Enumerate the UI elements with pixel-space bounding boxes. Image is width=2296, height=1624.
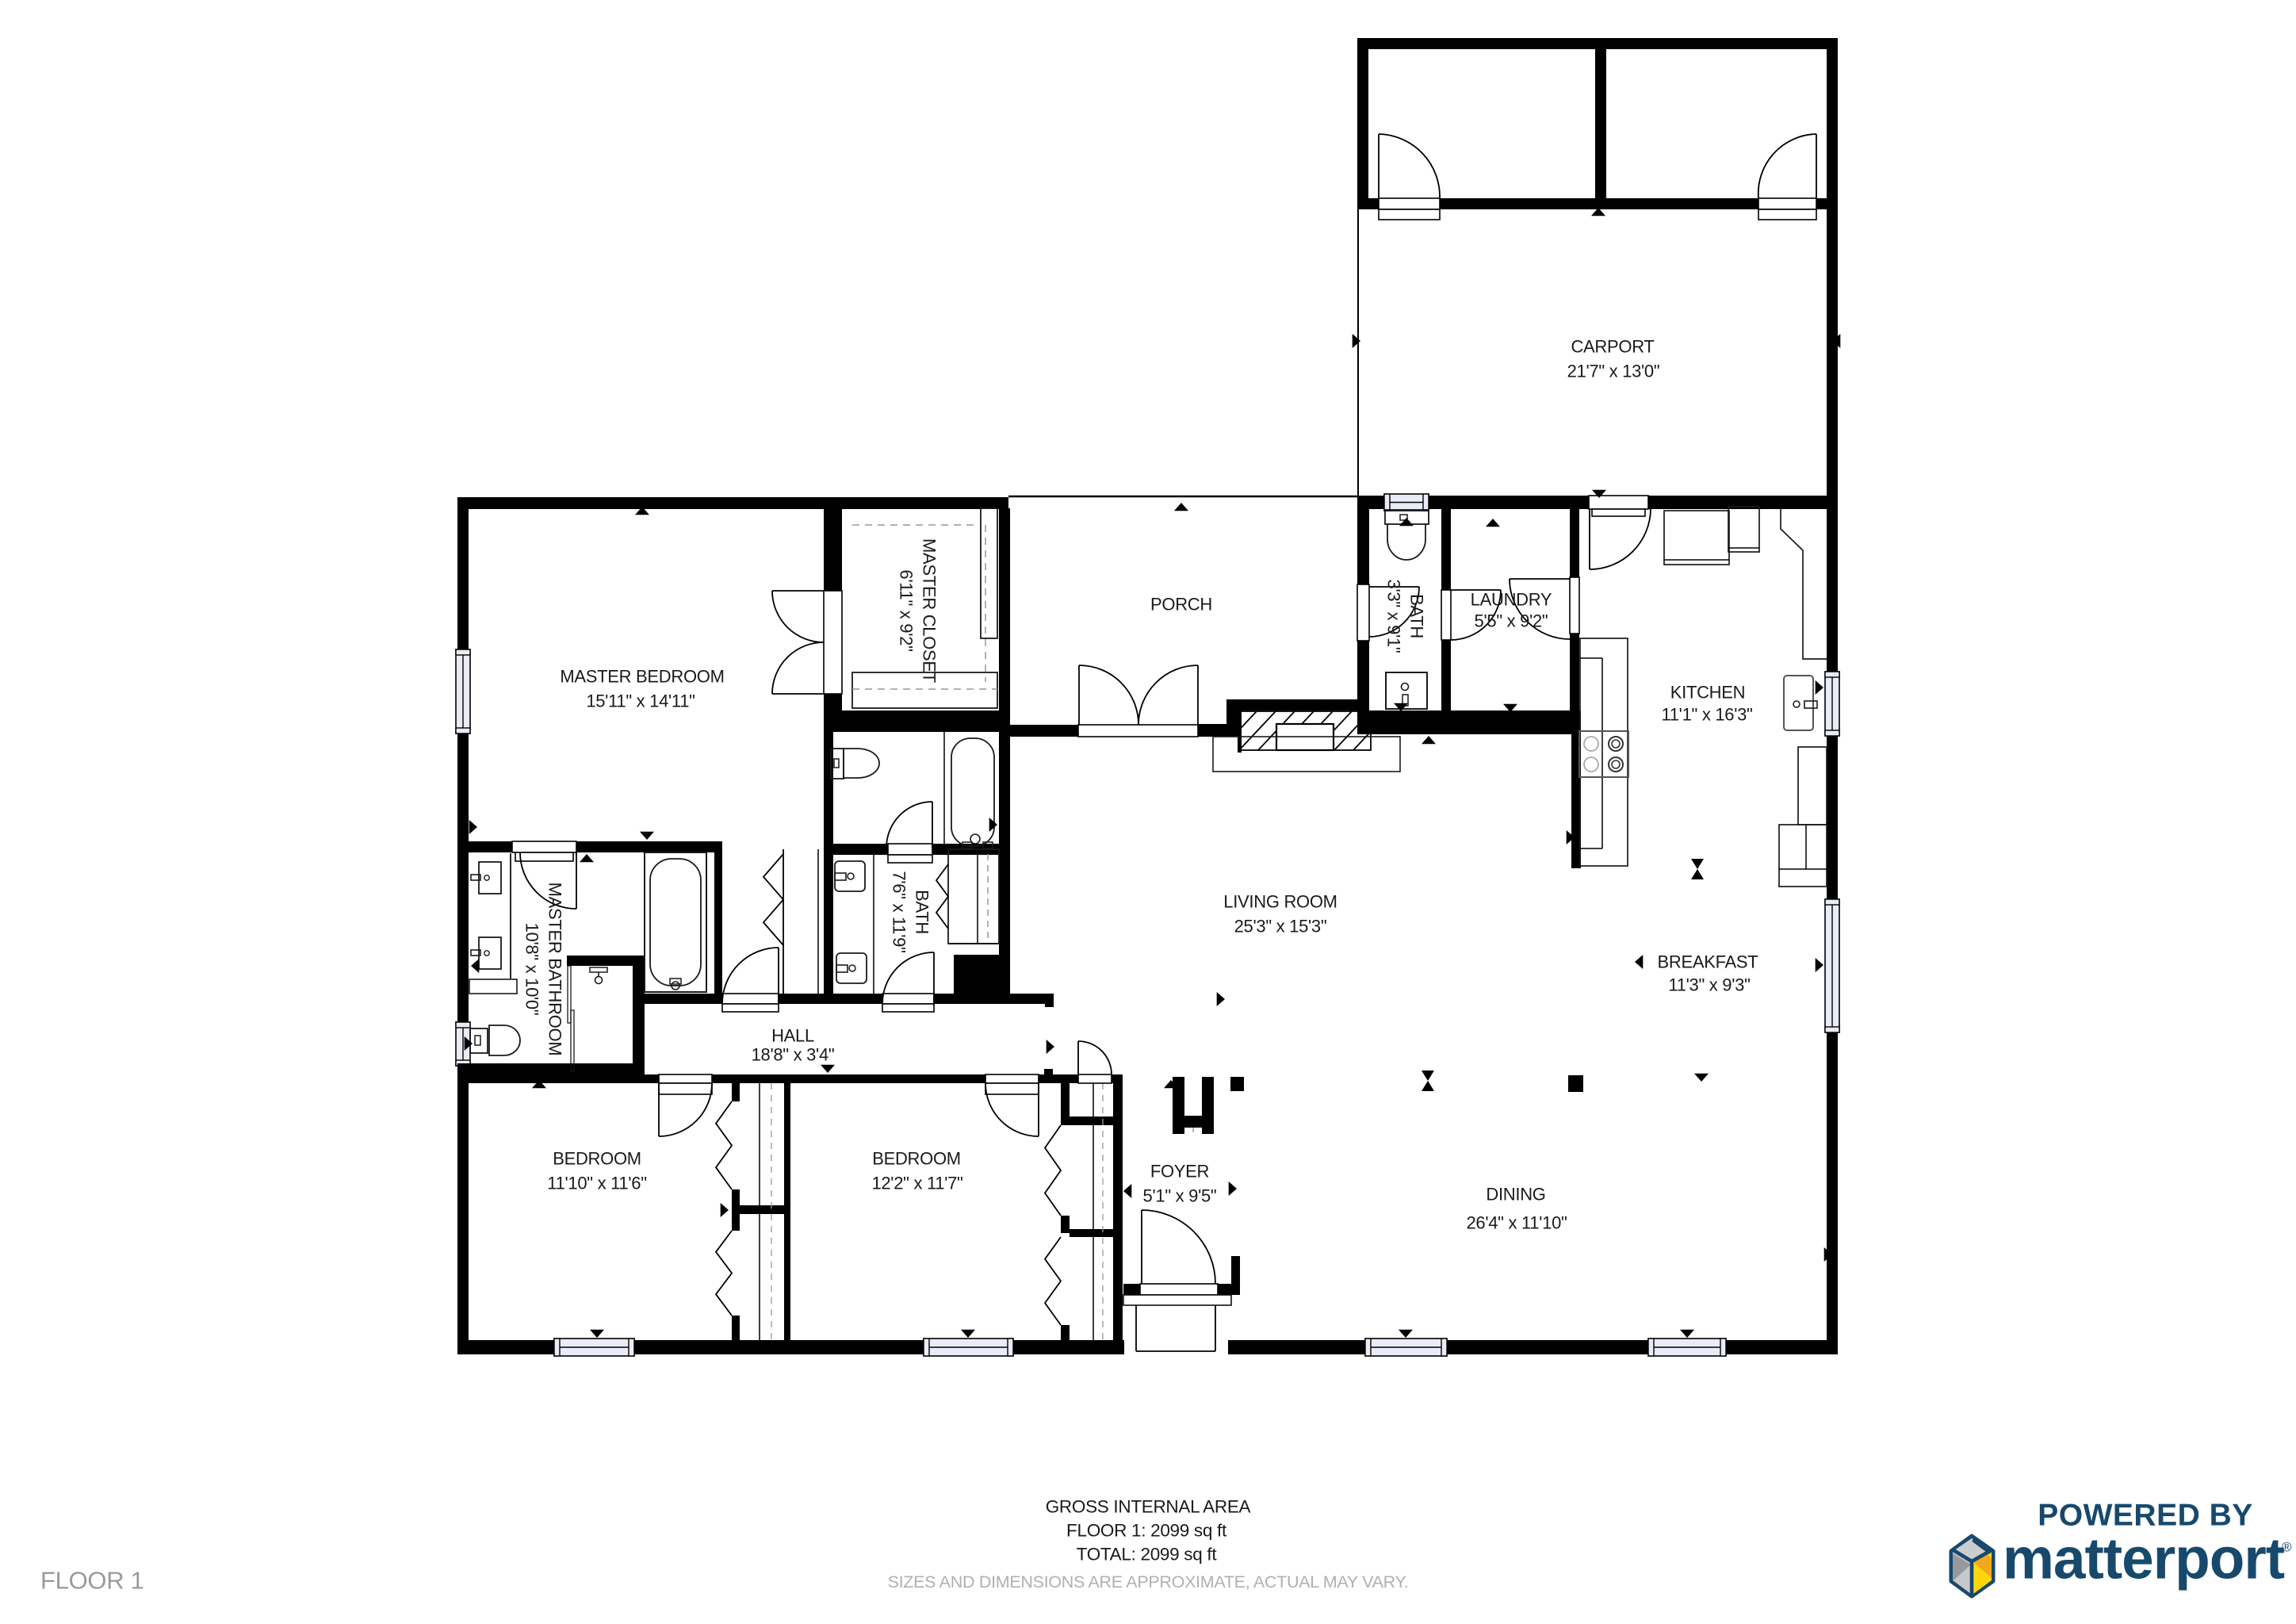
svg-text:5'1" x 9'5": 5'1" x 9'5"	[1143, 1186, 1217, 1206]
svg-text:SIZES AND DIMENSIONS ARE APPRO: SIZES AND DIMENSIONS ARE APPROXIMATE, AC…	[888, 1572, 1409, 1591]
svg-text:®: ®	[2282, 1540, 2292, 1555]
svg-text:12'2" x 11'7": 12'2" x 11'7"	[871, 1174, 962, 1193]
svg-text:25'3" x 15'3": 25'3" x 15'3"	[1234, 917, 1327, 936]
svg-text:6'11" x 9'2": 6'11" x 9'2"	[897, 569, 916, 651]
svg-text:HALL: HALL	[771, 1026, 814, 1046]
svg-text:15'11" x 14'11": 15'11" x 14'11"	[586, 691, 695, 711]
svg-text:LIVING ROOM: LIVING ROOM	[1223, 892, 1337, 912]
svg-text:matterport: matterport	[2003, 1527, 2285, 1591]
svg-text:FLOOR 1: FLOOR 1	[40, 1567, 144, 1595]
svg-text:18'8" x 3'4": 18'8" x 3'4"	[752, 1045, 835, 1065]
svg-text:FLOOR 1: 2099 sq ft: FLOOR 1: 2099 sq ft	[1066, 1521, 1227, 1541]
svg-text:MASTER BEDROOM: MASTER BEDROOM	[560, 667, 724, 687]
svg-text:TOTAL: 2099 sq ft: TOTAL: 2099 sq ft	[1077, 1545, 1218, 1565]
svg-text:10'8" x 10'0": 10'8" x 10'0"	[522, 923, 542, 1016]
svg-text:LAUNDRY: LAUNDRY	[1471, 590, 1552, 610]
svg-text:11'3" x 9'3": 11'3" x 9'3"	[1668, 975, 1750, 995]
svg-text:21'7" x 13'0": 21'7" x 13'0"	[1567, 362, 1660, 381]
svg-text:11'10" x 11'6": 11'10" x 11'6"	[547, 1174, 646, 1193]
svg-text:BEDROOM: BEDROOM	[553, 1149, 641, 1169]
svg-text:7'6" x 11'9": 7'6" x 11'9"	[890, 871, 909, 952]
svg-text:CARPORT: CARPORT	[1571, 337, 1654, 357]
svg-text:DINING: DINING	[1486, 1185, 1545, 1205]
svg-text:PORCH: PORCH	[1150, 595, 1212, 615]
svg-text:BREAKFAST: BREAKFAST	[1658, 952, 1758, 972]
svg-text:FOYER: FOYER	[1150, 1162, 1209, 1182]
svg-text:BEDROOM: BEDROOM	[872, 1149, 961, 1169]
svg-text:11'1" x 16'3": 11'1" x 16'3"	[1661, 705, 1752, 725]
svg-text:5'5" x 9'2": 5'5" x 9'2"	[1475, 611, 1548, 631]
svg-text:MASTER BATHROOM: MASTER BATHROOM	[545, 883, 565, 1056]
svg-text:KITCHEN: KITCHEN	[1670, 683, 1745, 703]
svg-text:BATH: BATH	[913, 890, 932, 934]
svg-text:GROSS INTERNAL AREA: GROSS INTERNAL AREA	[1046, 1497, 1251, 1517]
svg-text:MASTER CLOSET: MASTER CLOSET	[920, 538, 939, 683]
svg-text:BATH: BATH	[1407, 594, 1427, 638]
svg-text:3'3" x 9'1": 3'3" x 9'1"	[1384, 580, 1404, 653]
svg-text:26'4" x 11'10": 26'4" x 11'10"	[1466, 1213, 1567, 1233]
